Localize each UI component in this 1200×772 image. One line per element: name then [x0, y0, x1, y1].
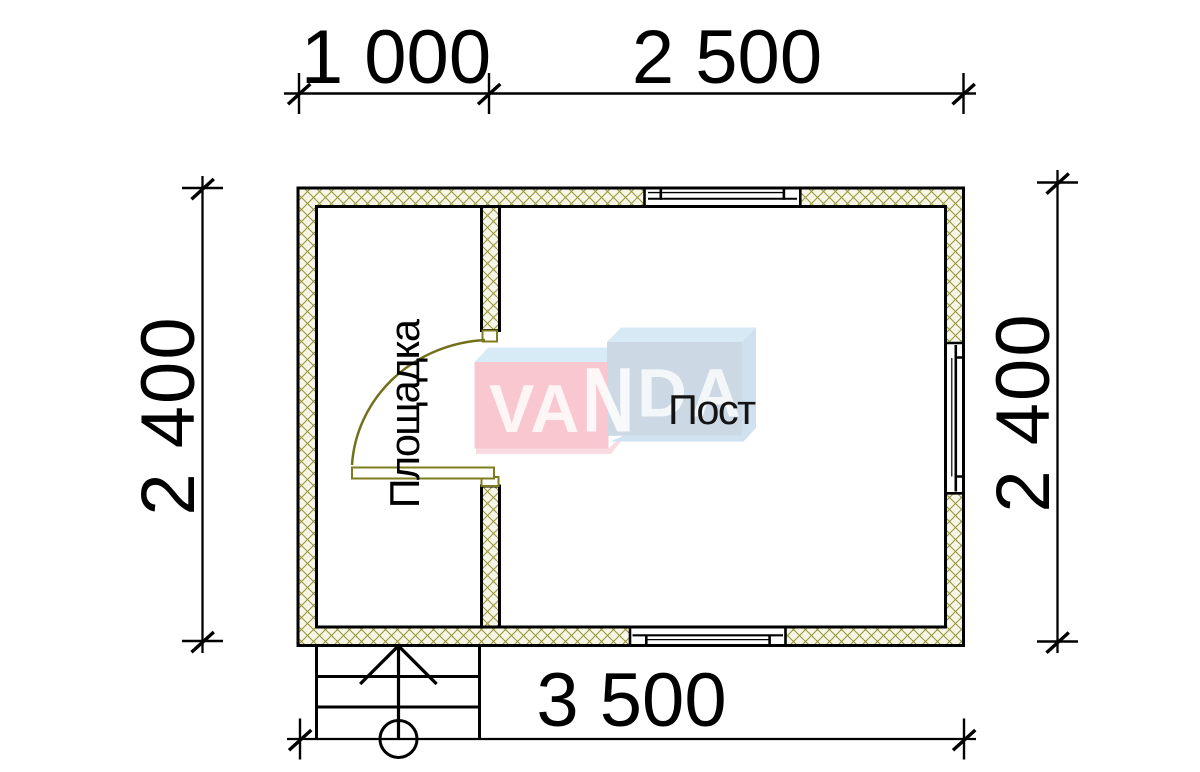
svg-text:Площадка: Площадка — [381, 318, 428, 508]
svg-text:2 400: 2 400 — [981, 312, 1066, 512]
svg-text:1 000: 1 000 — [301, 15, 491, 100]
svg-text:2 500: 2 500 — [632, 15, 822, 100]
svg-text:2 400: 2 400 — [126, 315, 211, 515]
svg-text:3 500: 3 500 — [536, 658, 726, 743]
svg-text:Пост: Пост — [668, 386, 756, 433]
svg-text:VA: VA — [489, 371, 580, 447]
svg-text:N: N — [582, 348, 634, 451]
